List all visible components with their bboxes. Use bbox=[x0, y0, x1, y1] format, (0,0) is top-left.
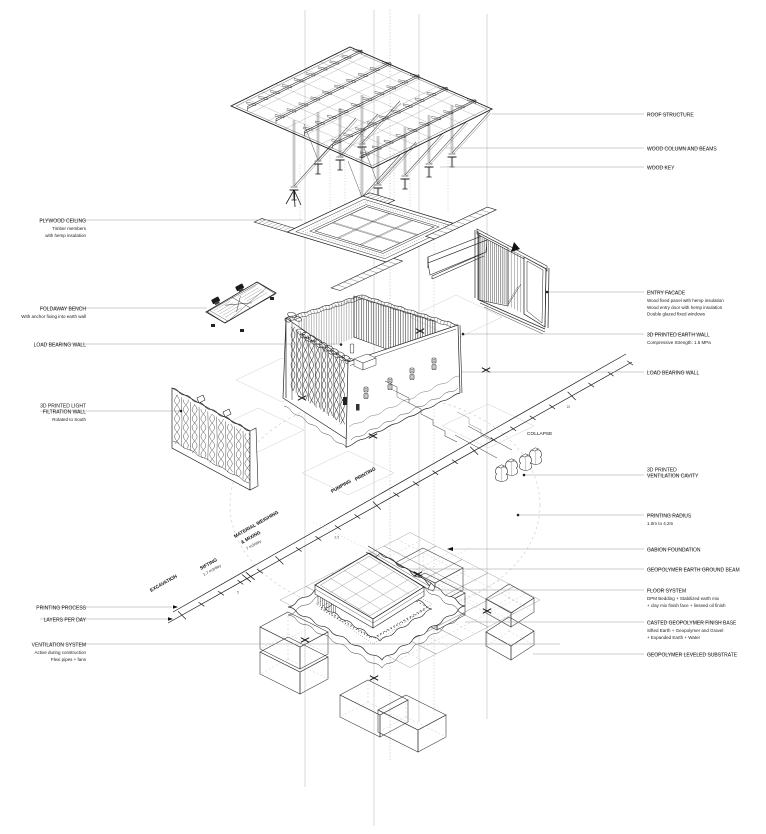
svg-text:WOOD KEY: WOOD KEY bbox=[647, 166, 675, 172]
svg-text:ROOF STRUCTURE: ROOF STRUCTURE bbox=[647, 113, 694, 119]
svg-text:LOAD BEARING WALL: LOAD BEARING WALL bbox=[647, 371, 700, 377]
svg-text:ENTRY FACADE: ENTRY FACADE bbox=[647, 291, 686, 297]
svg-text:Sifted Earth + Geopolymer and: Sifted Earth + Geopolymer and Gravel bbox=[647, 628, 723, 633]
svg-text:Double glazed fixed windows: Double glazed fixed windows bbox=[647, 312, 706, 317]
svg-text:FLOOR SYSTEM: FLOOR SYSTEM bbox=[647, 589, 686, 595]
svg-text:Compressive Strength: 1.5 MPa: Compressive Strength: 1.5 MPa bbox=[647, 340, 711, 345]
svg-text:5: 5 bbox=[237, 591, 239, 595]
svg-text:PLYWOOD CEILING: PLYWOOD CEILING bbox=[39, 219, 86, 225]
svg-text:GEOPOLYMER EARTH GROUND BEAM: GEOPOLYMER EARTH GROUND BEAM bbox=[647, 568, 740, 574]
svg-text:GABION FOUNDATION: GABION FOUNDATION bbox=[647, 548, 701, 554]
svg-text:LAYERS PER DAY: LAYERS PER DAY bbox=[44, 618, 87, 624]
svg-text:GEOPOLYMER LEVELED SUBSTRATE: GEOPOLYMER LEVELED SUBSTRATE bbox=[647, 653, 738, 659]
svg-text:FILTRATION WALL: FILTRATION WALL bbox=[43, 410, 86, 416]
svg-text:VENTILATION SYSTEM: VENTILATION SYSTEM bbox=[32, 643, 86, 649]
svg-text:3,5: 3,5 bbox=[334, 536, 339, 540]
svg-text:CASTED GEOPOLYMER FINISH BASE: CASTED GEOPOLYMER FINISH BASE bbox=[647, 621, 737, 627]
svg-text:+ clay mix finish face + linse: + clay mix finish face + linseed oil fin… bbox=[647, 603, 726, 608]
svg-text:PUMPING: PUMPING bbox=[330, 478, 353, 494]
svg-text:EXCAVATION: EXCAVATION bbox=[149, 573, 179, 593]
svg-text:with hemp insulation: with hemp insulation bbox=[45, 233, 86, 238]
svg-text:With anchor fixing into earth: With anchor fixing into earth wall bbox=[21, 314, 86, 319]
svg-text:Active during construction: Active during construction bbox=[34, 650, 86, 655]
svg-text:VENTILATION CAVITY: VENTILATION CAVITY bbox=[647, 474, 699, 480]
svg-text:3D PRINTED EARTH WALL: 3D PRINTED EARTH WALL bbox=[647, 333, 710, 339]
svg-text:+ Expanded Earth + Water: + Expanded Earth + Water bbox=[647, 635, 701, 640]
svg-text:10: 10 bbox=[566, 405, 570, 409]
svg-text:Timber members: Timber members bbox=[52, 226, 87, 231]
svg-text:COLLAPSE: COLLAPSE bbox=[527, 431, 552, 437]
svg-text:PRINTING RADIUS: PRINTING RADIUS bbox=[647, 514, 692, 520]
svg-text:Rotated to South: Rotated to South bbox=[52, 417, 86, 422]
svg-text:1.0m to 4.2m: 1.0m to 4.2m bbox=[647, 521, 674, 526]
svg-text:WOOD COLUMN AND BEAMS: WOOD COLUMN AND BEAMS bbox=[647, 147, 717, 153]
svg-text:DPM Bedding + Stabilized earth: DPM Bedding + Stabilized earth mix bbox=[647, 596, 720, 601]
svg-text:LOAD BEARING WALL: LOAD BEARING WALL bbox=[34, 343, 87, 349]
svg-text:Flexi pipes + fans: Flexi pipes + fans bbox=[51, 657, 87, 662]
svg-text:3D PRINTED LIGHT: 3D PRINTED LIGHT bbox=[40, 404, 86, 410]
svg-text:Wood entry door with hemp insu: Wood entry door with hemp insulation bbox=[647, 305, 723, 310]
svg-text:Wood fixed panel with hemp ins: Wood fixed panel with hemp insulation bbox=[647, 298, 724, 303]
svg-text:PRINTING PROCESS: PRINTING PROCESS bbox=[36, 606, 86, 612]
svg-text:FOLDAWAY BENCH: FOLDAWAY BENCH bbox=[40, 307, 87, 313]
